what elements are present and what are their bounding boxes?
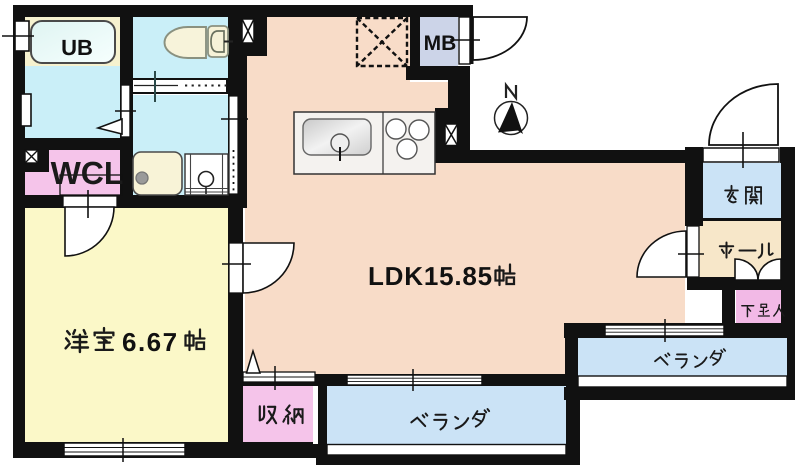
svg-text:MB: MB [424,32,457,55]
svg-text:6.67: 6.67 [122,327,179,357]
svg-text:LDK15.85: LDK15.85 [368,261,493,291]
svg-text:WCL: WCL [51,155,124,191]
svg-text:UB: UB [61,35,93,60]
